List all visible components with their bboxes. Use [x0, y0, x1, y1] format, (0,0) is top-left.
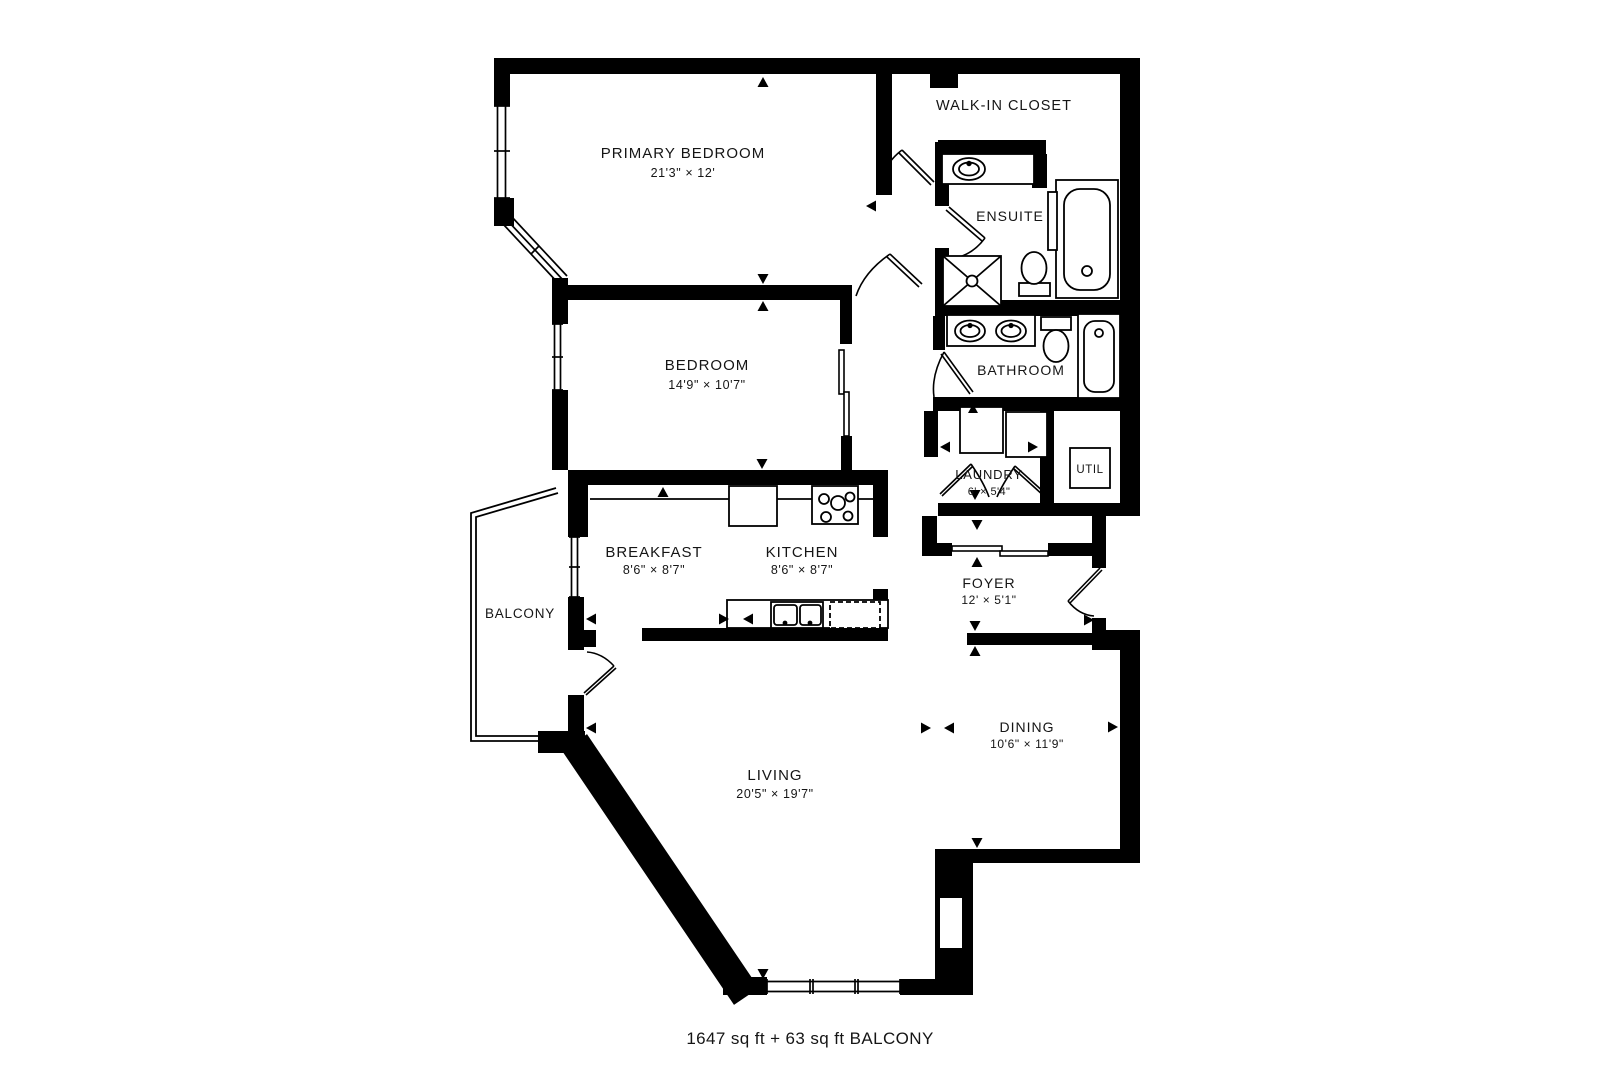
- wall-closet-left: [876, 74, 892, 195]
- floor-plan-drawing: PRIMARY BEDROOM 21'3" × 12' WALK-IN CLOS…: [0, 0, 1620, 1080]
- arrow-icon: [972, 520, 983, 530]
- wall-laundry-left: [924, 411, 938, 457]
- wall-kitchen-right-top: [873, 485, 888, 537]
- area-summary: 1647 sq ft + 63 sq ft BALCONY: [686, 1029, 933, 1048]
- wall-dining-bottom: [935, 849, 1140, 863]
- bathroom-toilet-icon: [1041, 317, 1071, 362]
- bedroom-label: BEDROOM: [665, 357, 750, 374]
- wall-balcony-door-lower: [568, 695, 584, 733]
- wall-bath-left: [933, 316, 945, 350]
- arrow-icon: [921, 723, 931, 734]
- foyer-dims: 12' × 5'1": [961, 593, 1016, 607]
- window-living-bottom: [767, 979, 900, 994]
- wall-bottom-block-right: [900, 979, 935, 995]
- laundry-label: LAUNDRY: [955, 467, 1023, 482]
- arrow-icon: [586, 614, 596, 625]
- wall-closet-bump: [930, 74, 958, 88]
- living-dims: 20'5" × 19'7": [736, 787, 813, 801]
- bathroom-double-sink-icon: [947, 315, 1035, 346]
- wall-balcony-door-upper: [568, 597, 584, 650]
- window-primary-left: [494, 106, 510, 198]
- wall-slide-stub-left: [924, 543, 952, 556]
- wall-slide-stub-right: [1048, 543, 1092, 556]
- wall-balcony-bump: [584, 630, 596, 647]
- kitchen-dims: 8'6" × 8'7": [771, 563, 833, 577]
- bedroom-closet-sliding-doors: [839, 350, 849, 436]
- floor-plan-page: PRIMARY BEDROOM 21'3" × 12' WALK-IN CLOS…: [0, 0, 1620, 1080]
- util-label: UTIL: [1076, 464, 1103, 476]
- ensuite-label: ENSUITE: [976, 208, 1044, 224]
- foyer-label: FOYER: [962, 575, 1015, 591]
- wall-bay-block: [494, 198, 514, 226]
- wall-dining-right: [1120, 650, 1140, 863]
- wall-bed-closet-stub-top: [840, 300, 852, 344]
- ensuite-sink-icon: [942, 154, 1034, 184]
- kitchen-label: KITCHEN: [766, 544, 839, 561]
- foyer-closet-sliding-doors: [952, 546, 1048, 556]
- wall-closet-bottom: [938, 140, 1046, 154]
- door-balcony: [584, 652, 616, 695]
- bathroom-label: BATHROOM: [977, 362, 1065, 378]
- door-entry: [1068, 568, 1102, 616]
- arrow-icon: [944, 723, 954, 734]
- wall-niche: [940, 898, 962, 948]
- wall-bed-closet-stub-bottom: [841, 436, 852, 470]
- shower-icon: [943, 256, 1001, 306]
- wall-primary-bottom: [552, 285, 852, 300]
- arrow-icon: [658, 487, 669, 497]
- door-bedroom: [856, 254, 922, 296]
- arrow-icon: [970, 646, 981, 656]
- arrow-icon: [970, 621, 981, 631]
- breakfast-dims: 8'6" × 8'7": [623, 563, 685, 577]
- dining-label: DINING: [1000, 719, 1055, 735]
- bathroom-bathtub-icon: [1078, 314, 1120, 398]
- primary-bedroom-label: PRIMARY BEDROOM: [601, 145, 765, 162]
- washer-icon: [960, 407, 1003, 453]
- wall-foyer-right: [1092, 516, 1106, 568]
- arrow-icon: [940, 442, 950, 453]
- laundry-dims: 6' × 5'4": [968, 486, 1011, 498]
- wall-bay-bottom-block: [552, 278, 568, 324]
- walls: [494, 58, 1140, 995]
- wall-top: [494, 58, 1140, 74]
- arrow-icon: [1108, 722, 1118, 733]
- breakfast-label: BREAKFAST: [605, 544, 702, 561]
- bedroom-dims: 14'9" × 10'7": [668, 378, 745, 392]
- wall-kitchen-top: [568, 470, 888, 485]
- arrow-icon: [586, 723, 596, 734]
- wall-breakfast-stub: [568, 485, 588, 537]
- arrow-icon: [758, 77, 769, 87]
- wall-topleft: [494, 74, 510, 106]
- window-breakfast-left: [569, 537, 580, 597]
- fridge-icon: [729, 486, 777, 526]
- balcony-label: BALCONY: [485, 606, 555, 621]
- arrow-icon: [758, 274, 769, 284]
- arrow-icon: [757, 459, 768, 469]
- wall-living-diagonal: [583, 755, 738, 984]
- arrow-icon: [972, 557, 983, 567]
- window-primary-bay-diagonal: [503, 216, 567, 284]
- wall-foyer-bottom: [967, 633, 1092, 645]
- stove-icon: [812, 486, 858, 524]
- dining-dims: 10'6" × 11'9": [990, 737, 1064, 751]
- walk-in-closet-label: WALK-IN CLOSET: [936, 98, 1072, 114]
- ensuite-bathtub-icon: [1048, 180, 1118, 298]
- wall-bedroom-left: [552, 390, 568, 470]
- arrow-icon: [758, 301, 769, 311]
- ensuite-toilet-icon: [1019, 252, 1050, 296]
- dryer-icon: [1006, 412, 1047, 457]
- arrow-icon: [972, 838, 983, 848]
- primary-bedroom-dims: 21'3" × 12': [651, 166, 716, 180]
- door-bathroom: [933, 352, 973, 397]
- wall-foyer-top-band: [938, 503, 1140, 516]
- dishwasher-icon: [830, 602, 880, 628]
- wall-dining-corner: [1092, 630, 1140, 650]
- living-label: LIVING: [747, 767, 802, 784]
- island-sink-icon: [771, 602, 823, 628]
- window-bedroom-left: [552, 324, 563, 390]
- wall-right-outer: [1120, 74, 1140, 514]
- arrow-icon: [866, 201, 876, 212]
